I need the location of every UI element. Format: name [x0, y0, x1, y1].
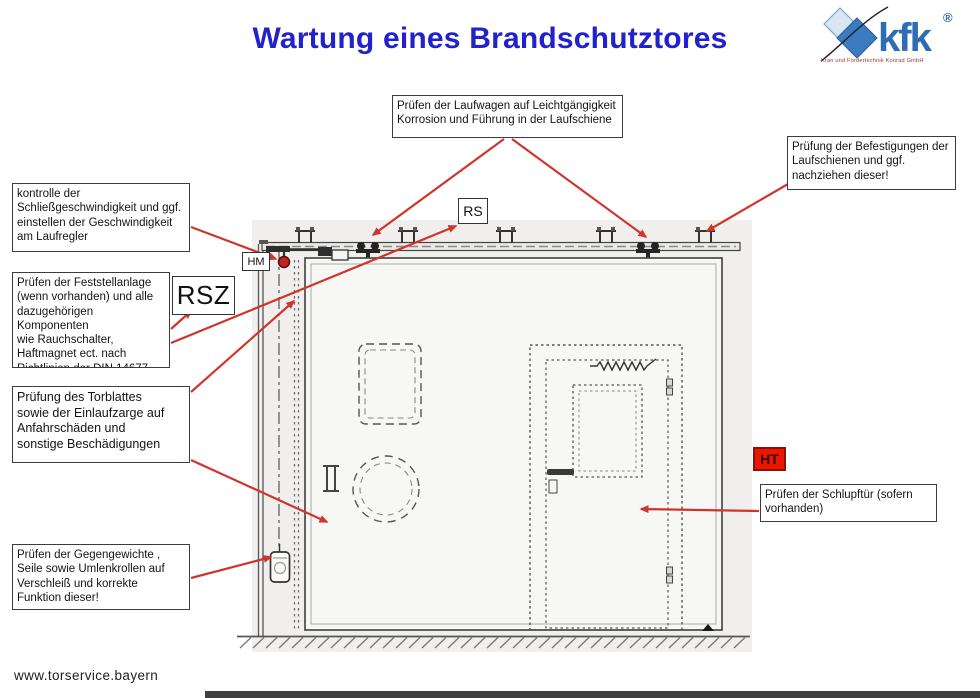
registered-mark: ®: [943, 10, 953, 25]
door-handle: [547, 469, 574, 475]
bottom-bar: [205, 691, 980, 698]
tag-rsz: RSZ: [172, 276, 235, 315]
logo-caption: Kran und Fördertechnik Konrad GmbH: [821, 58, 924, 64]
callout-schlupftuer: Prüfen der Schlupftür (sofern vorhanden): [760, 484, 937, 522]
magnet-dot: [279, 257, 290, 268]
callout-torblatt: Prüfung des Torblattes sowie der Einlauf…: [12, 386, 190, 463]
tag-hm: HM: [242, 252, 270, 271]
callout-befestigung: Prüfung der Befestigungen der Laufschien…: [787, 136, 956, 190]
callout-laufwagen: Prüfen der Laufwagen auf Leichtgängigkei…: [392, 95, 623, 138]
tag-ht: HT: [753, 447, 786, 471]
company-logo: kfk ® Kran und Fördertechnik Konrad GmbH: [818, 5, 970, 65]
callout-schliessgeschwindigkeit: kontrolle der Schließgeschwindigkeit und…: [12, 183, 190, 252]
logo-brand-text: kfk: [878, 16, 933, 60]
door-leaf: [305, 258, 722, 630]
callout-feststellanlage: Prüfen der Feststellanlage (wenn vorhand…: [12, 272, 170, 368]
website-url: www.torservice.bayern: [14, 668, 158, 683]
tag-rs: RS: [458, 198, 488, 224]
callout-gegengewichte: Prüfen der Gegengewichte , Seile sowie U…: [12, 544, 190, 610]
